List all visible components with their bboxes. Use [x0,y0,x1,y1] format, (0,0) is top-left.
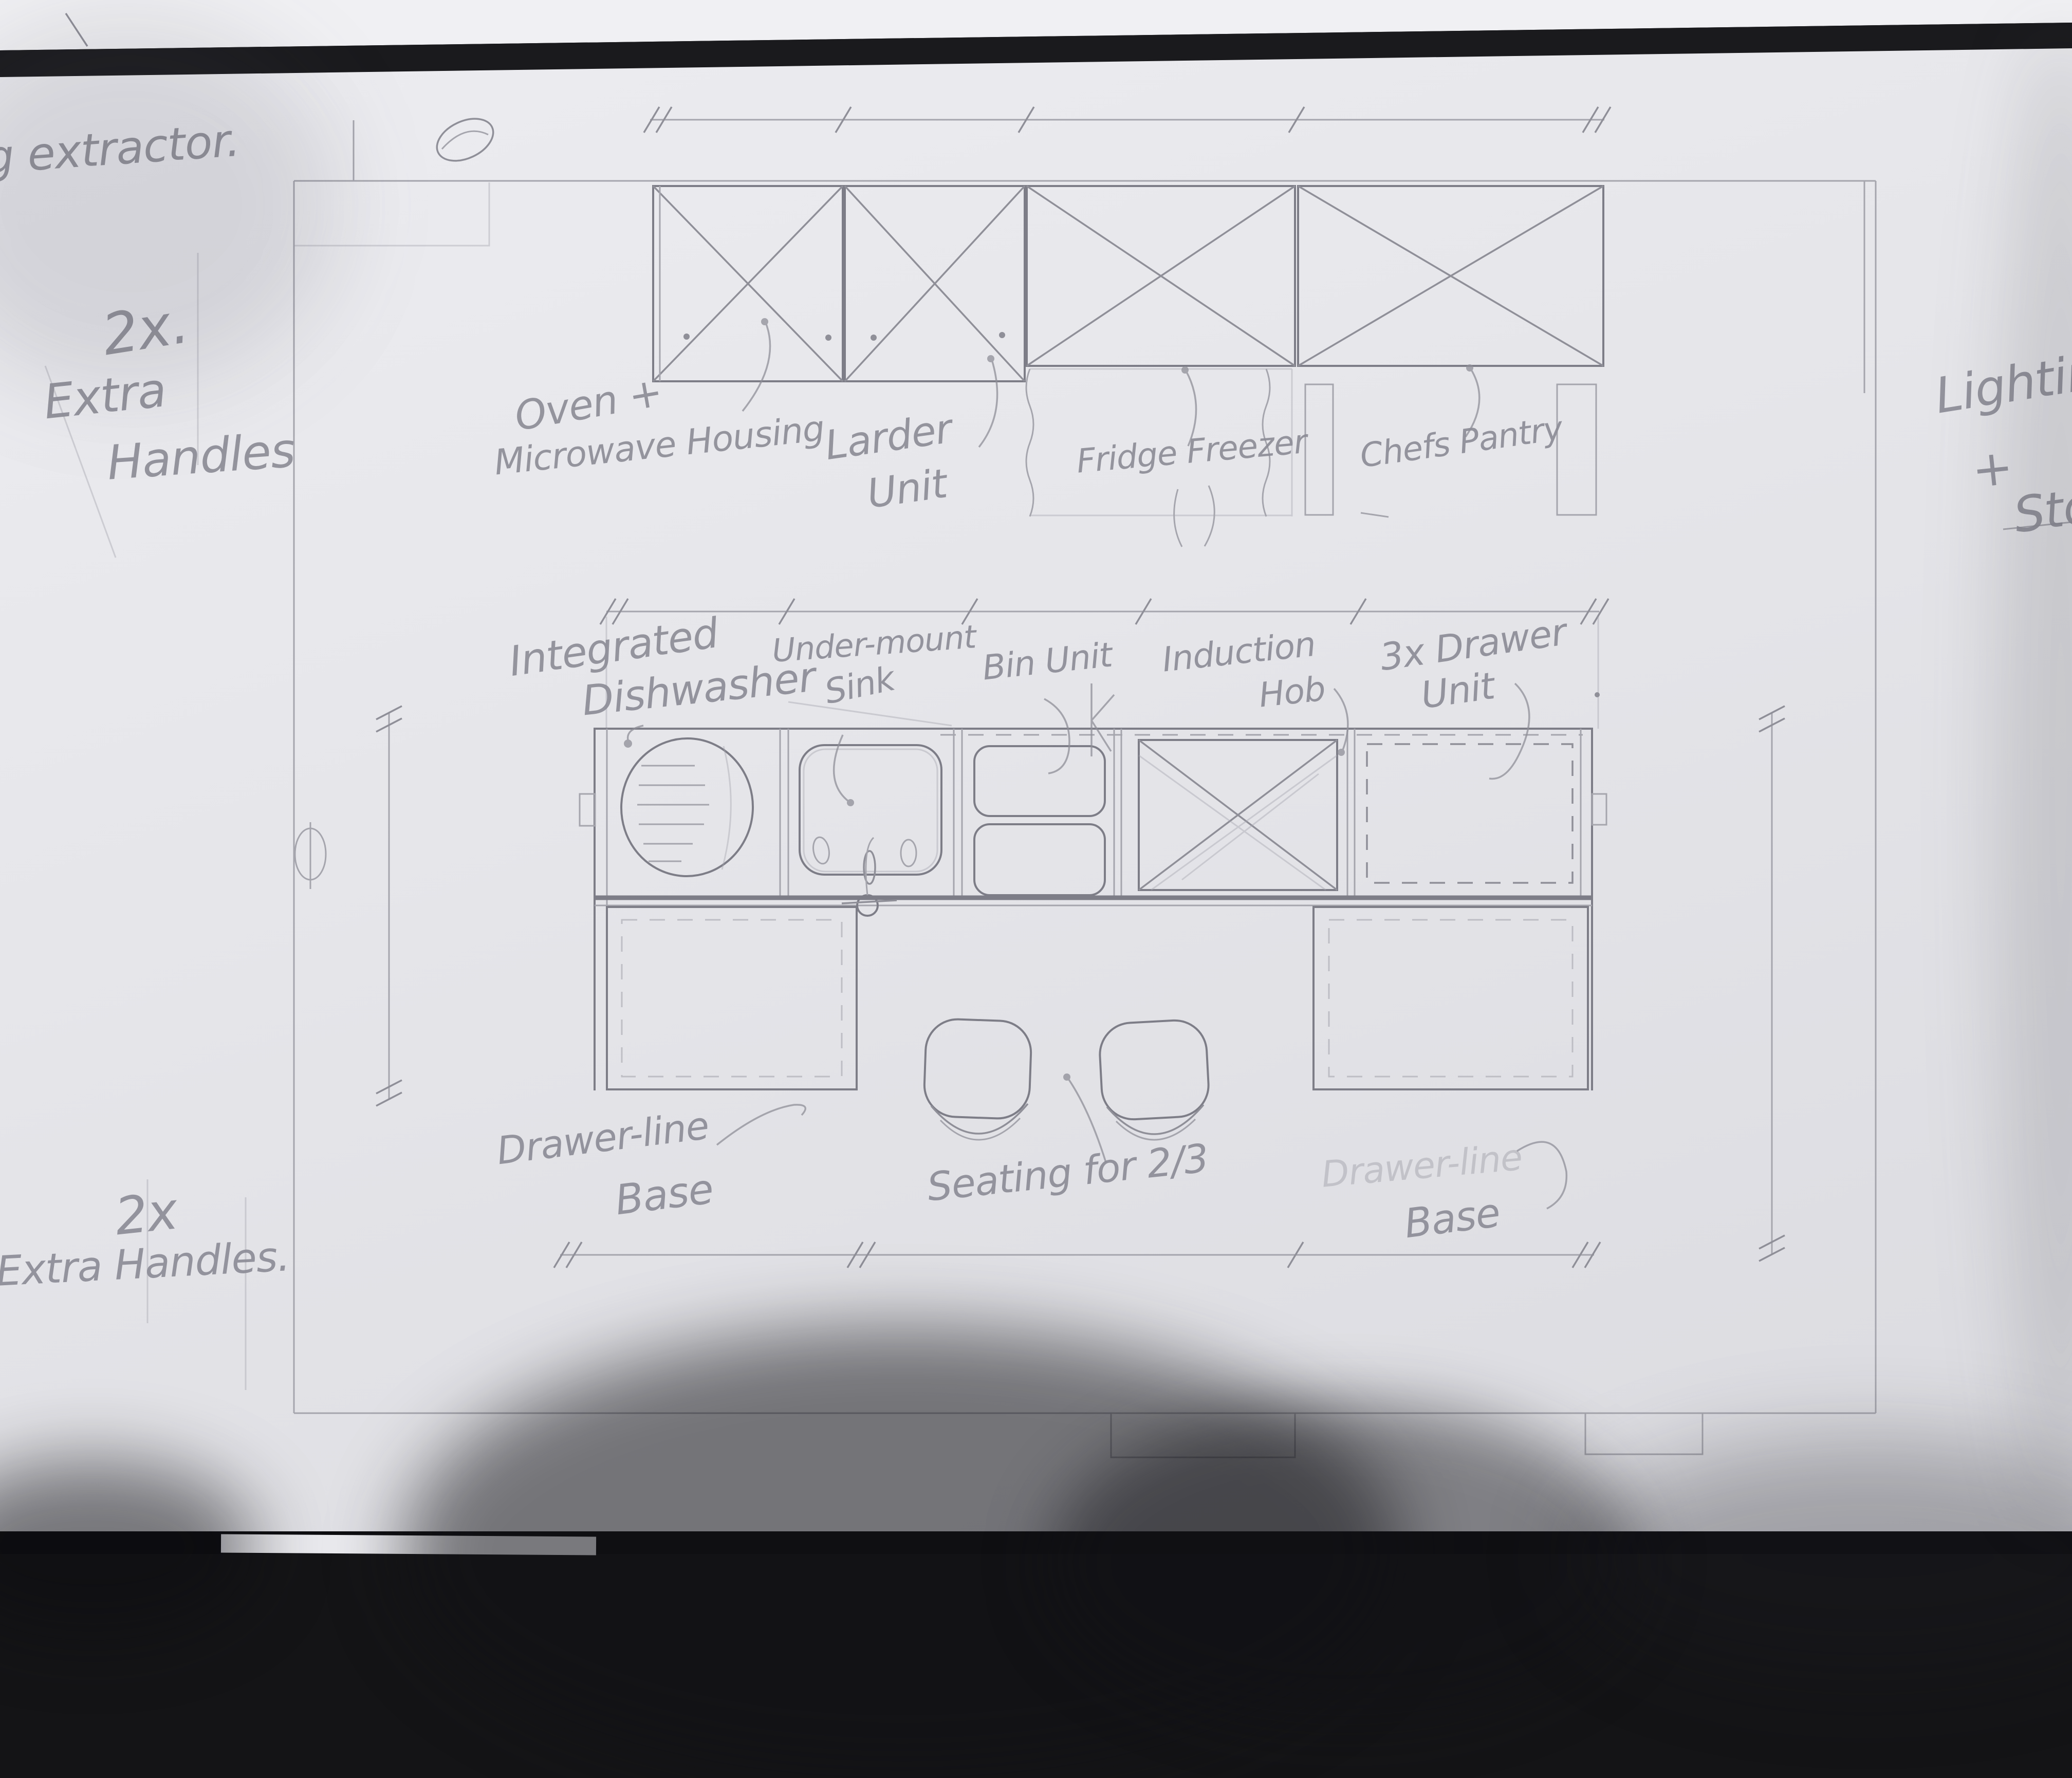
bin-unit-plan [974,746,1105,895]
bottom-dimension-line [554,1242,1600,1268]
room-outline [294,120,1876,1457]
wall-units-dimension-line [644,107,1611,133]
pencil-scribbles [45,110,2072,1390]
island-plan [580,729,1606,1090]
pencil-tick-mark [66,13,87,46]
note-extra-handles-bottom-qty: 2x [112,1180,180,1247]
right-dimension-line [1759,706,1785,1261]
stool-1 [923,1018,1032,1119]
island-front-bases [607,907,1588,1089]
label-hob-line2: Hob [1257,669,1327,715]
note-extra-handles-top-qty: 2x. [98,290,193,368]
integrated-dishwasher-plan [618,735,756,879]
wall-cabinets-elevation [653,186,1603,381]
photo-of-kitchen-sketch: Ceiling extractor. 2x. Extra Handles Lig… [0,0,2072,1554]
induction-hob-plan [1139,740,1337,890]
drawer-unit-plan [1367,744,1572,883]
pencil-sketch [0,0,2072,1554]
stool-2 [1098,1019,1210,1121]
undermount-sink-plan [788,702,952,916]
note-lighting-plus: + [1969,439,2015,499]
left-dimension-line [295,706,402,1106]
drawer-line-base-left [607,907,857,1089]
drawer-line-base-right [1313,907,1588,1089]
